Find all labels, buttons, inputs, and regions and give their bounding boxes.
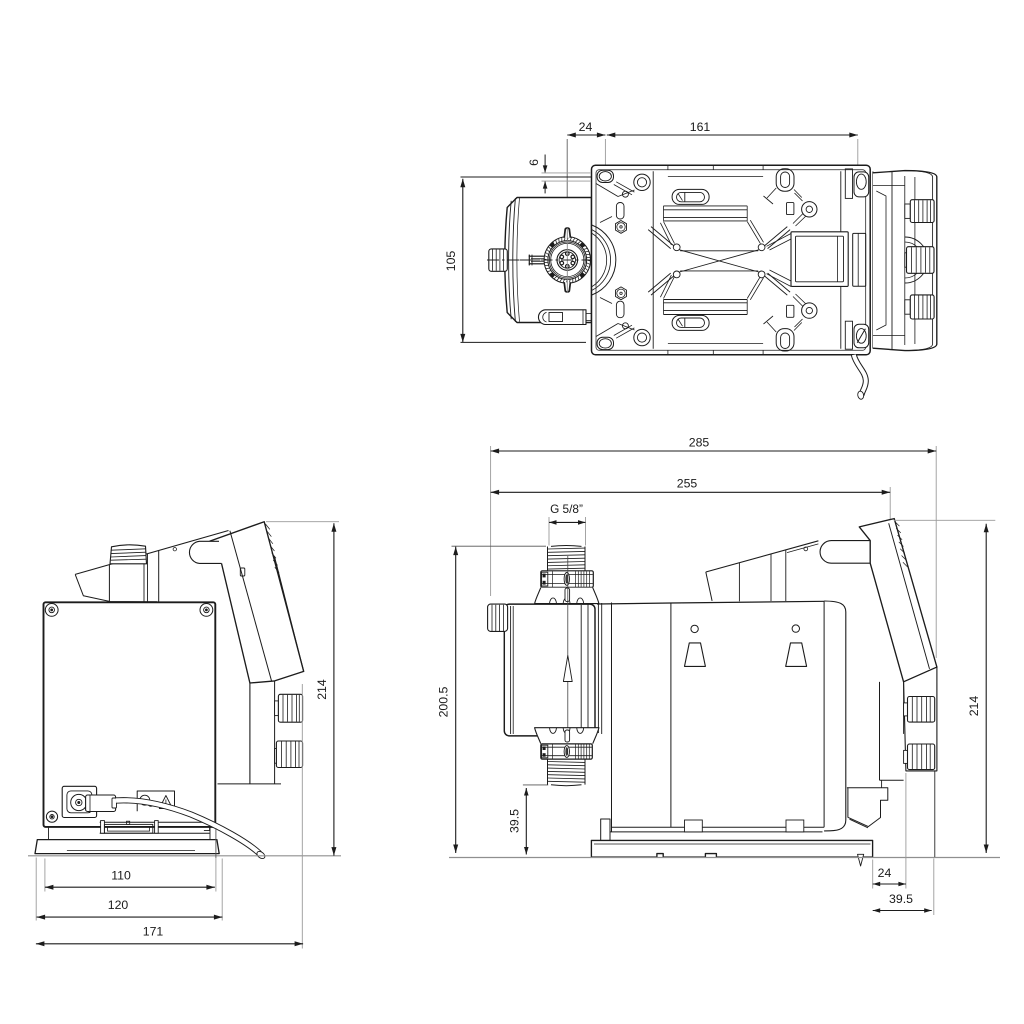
- svg-text:214: 214: [967, 696, 981, 717]
- svg-text:255: 255: [677, 477, 698, 491]
- svg-text:200.5: 200.5: [437, 686, 451, 717]
- svg-text:161: 161: [690, 120, 711, 134]
- svg-text:39.5: 39.5: [889, 892, 913, 906]
- svg-text:24: 24: [878, 866, 892, 880]
- svg-text:214: 214: [315, 679, 329, 700]
- svg-text:171: 171: [143, 925, 164, 939]
- svg-text:285: 285: [689, 435, 710, 449]
- svg-text:105: 105: [444, 251, 458, 272]
- svg-text:G 5/8”: G 5/8”: [550, 502, 583, 516]
- svg-text:110: 110: [111, 868, 131, 882]
- svg-text:6: 6: [527, 159, 541, 166]
- svg-text:24: 24: [579, 120, 593, 134]
- svg-text:120: 120: [108, 898, 129, 912]
- svg-text:39.5: 39.5: [508, 809, 522, 833]
